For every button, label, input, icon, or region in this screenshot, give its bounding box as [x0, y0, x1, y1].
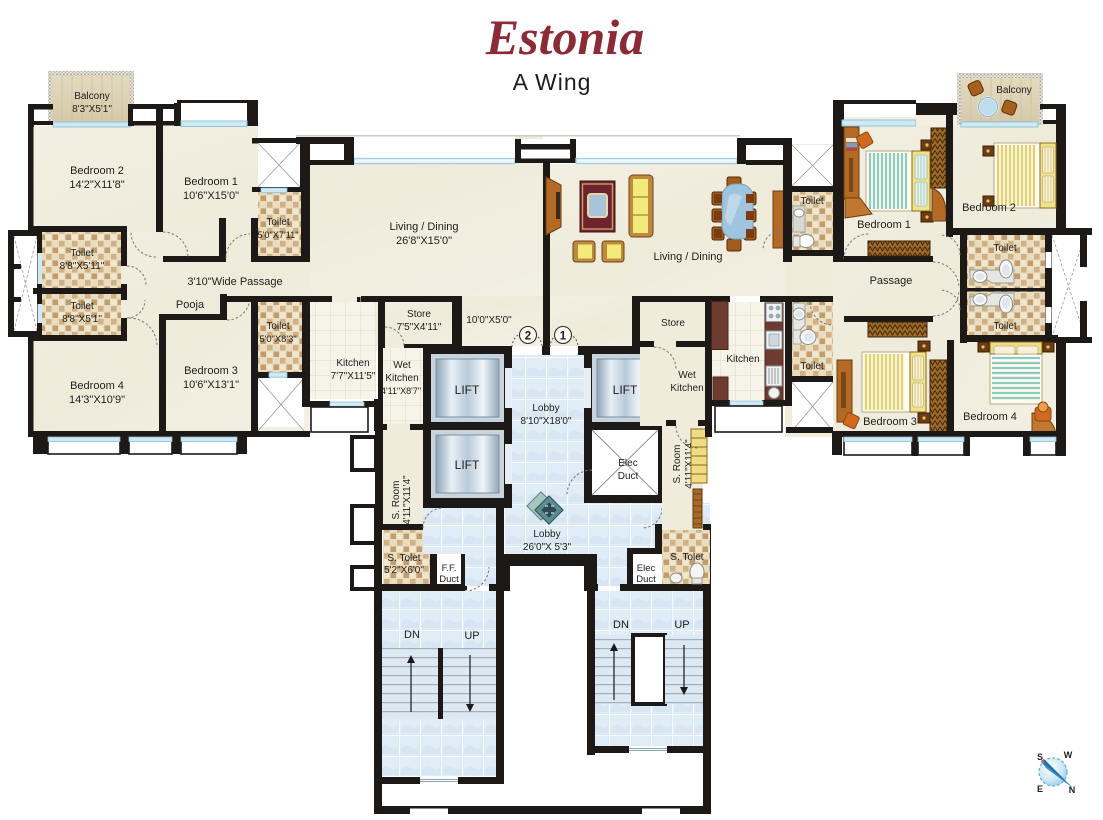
svg-text:Estonia: Estonia: [485, 9, 644, 65]
svg-text:S. Tolet: S. Tolet: [670, 552, 703, 563]
svg-text:10'6"X13'1": 10'6"X13'1": [183, 379, 239, 391]
svg-text:5'2"X6'0": 5'2"X6'0": [384, 565, 424, 576]
svg-text:Toilet: Toilet: [266, 217, 290, 228]
svg-text:Passage: Passage: [870, 275, 913, 287]
svg-text:26'8"X15'0": 26'8"X15'0": [396, 235, 452, 247]
svg-text:Bedroom 3: Bedroom 3: [863, 416, 917, 428]
svg-text:7'5"X4'11": 7'5"X4'11": [397, 322, 442, 333]
svg-text:14'3"X10'9": 14'3"X10'9": [69, 394, 125, 406]
svg-text:Lobby: Lobby: [533, 529, 560, 540]
svg-text:3'10"Wide Passage: 3'10"Wide Passage: [187, 276, 282, 288]
svg-text:Duct: Duct: [618, 471, 639, 482]
svg-text:LIFT: LIFT: [455, 383, 480, 397]
svg-text:14'2"X11'8": 14'2"X11'8": [69, 179, 124, 191]
svg-text:Store: Store: [407, 309, 431, 320]
svg-text:Wet: Wet: [678, 370, 696, 381]
svg-text:10'0"X5'0": 10'0"X5'0": [466, 315, 512, 326]
svg-text:LIFT: LIFT: [613, 383, 638, 397]
svg-text:8'8"X5'11": 8'8"X5'11": [60, 261, 105, 272]
svg-text:F.F.: F.F.: [442, 563, 457, 574]
svg-text:5'0"X7'11": 5'0"X7'11": [257, 230, 298, 240]
svg-text:Kitchen: Kitchen: [385, 373, 418, 384]
svg-text:Bedroom 4: Bedroom 4: [70, 380, 124, 392]
svg-text:8'3"X5'1": 8'3"X5'1": [72, 104, 112, 115]
svg-text:S. Tolet: S. Tolet: [387, 553, 420, 564]
svg-text:26'0"X 5'3": 26'0"X 5'3": [523, 542, 572, 553]
svg-text:Store: Store: [661, 318, 685, 329]
svg-text:Bedroom 4: Bedroom 4: [963, 411, 1017, 423]
svg-text:UP: UP: [674, 619, 689, 631]
svg-text:LIFT: LIFT: [455, 458, 480, 472]
svg-text:1: 1: [560, 331, 567, 343]
svg-text:Toilet: Toilet: [70, 301, 94, 312]
svg-text:2: 2: [525, 331, 531, 343]
svg-text:Toilet: Toilet: [266, 321, 290, 332]
svg-text:8'10"X18'0": 8'10"X18'0": [521, 416, 572, 427]
svg-text:Kitchen: Kitchen: [726, 354, 759, 365]
svg-text:Balcony: Balcony: [996, 85, 1032, 96]
svg-text:Kitchen: Kitchen: [336, 358, 369, 369]
svg-text:4'11"X8'7": 4'11"X8'7": [381, 386, 421, 396]
svg-text:DN: DN: [613, 619, 629, 631]
svg-text:Duct: Duct: [636, 574, 656, 585]
svg-text:UP: UP: [464, 630, 479, 642]
svg-text:5'0"X8'3": 5'0"X8'3": [259, 333, 296, 344]
svg-text:Duct: Duct: [439, 574, 459, 585]
svg-text:8'8"X5'1": 8'8"X5'1": [62, 314, 102, 325]
svg-text:7'7"X11'5": 7'7"X11'5": [331, 371, 376, 382]
svg-text:A Wing: A Wing: [513, 69, 592, 95]
svg-text:S. Room: S. Room: [672, 445, 683, 484]
svg-text:Elec: Elec: [637, 563, 656, 574]
svg-text:Pooja: Pooja: [176, 299, 205, 311]
svg-text:E: E: [1037, 784, 1043, 794]
svg-text:Bedroom 1: Bedroom 1: [184, 176, 238, 188]
svg-text:Bedroom 3: Bedroom 3: [184, 365, 238, 377]
svg-text:Bedroom 1: Bedroom 1: [857, 219, 911, 231]
svg-text:Wet: Wet: [393, 360, 411, 371]
svg-text:N: N: [1069, 785, 1076, 795]
svg-text:Toilet: Toilet: [70, 248, 94, 259]
svg-text:Toilet: Toilet: [800, 196, 824, 207]
svg-text:10'6"X15'0": 10'6"X15'0": [183, 190, 239, 202]
svg-text:Balcony: Balcony: [74, 91, 110, 102]
svg-text:S. Room: S. Room: [391, 481, 402, 520]
svg-text:Bedroom 2: Bedroom 2: [70, 165, 124, 177]
svg-text:Toilet: Toilet: [993, 243, 1017, 254]
svg-text:4'11"X11'4": 4'11"X11'4": [402, 475, 413, 525]
svg-text:W: W: [1064, 750, 1073, 760]
svg-text:DN: DN: [404, 629, 420, 641]
svg-text:Toilet: Toilet: [800, 361, 824, 372]
svg-text:Elec: Elec: [618, 458, 637, 469]
svg-text:Lobby: Lobby: [532, 403, 559, 414]
svg-text:Toilet: Toilet: [993, 321, 1017, 332]
svg-text:Living / Dining: Living / Dining: [653, 251, 722, 263]
svg-text:S: S: [1037, 752, 1043, 762]
svg-text:Living / Dining: Living / Dining: [389, 221, 458, 233]
svg-text:Kitchen: Kitchen: [670, 383, 703, 394]
